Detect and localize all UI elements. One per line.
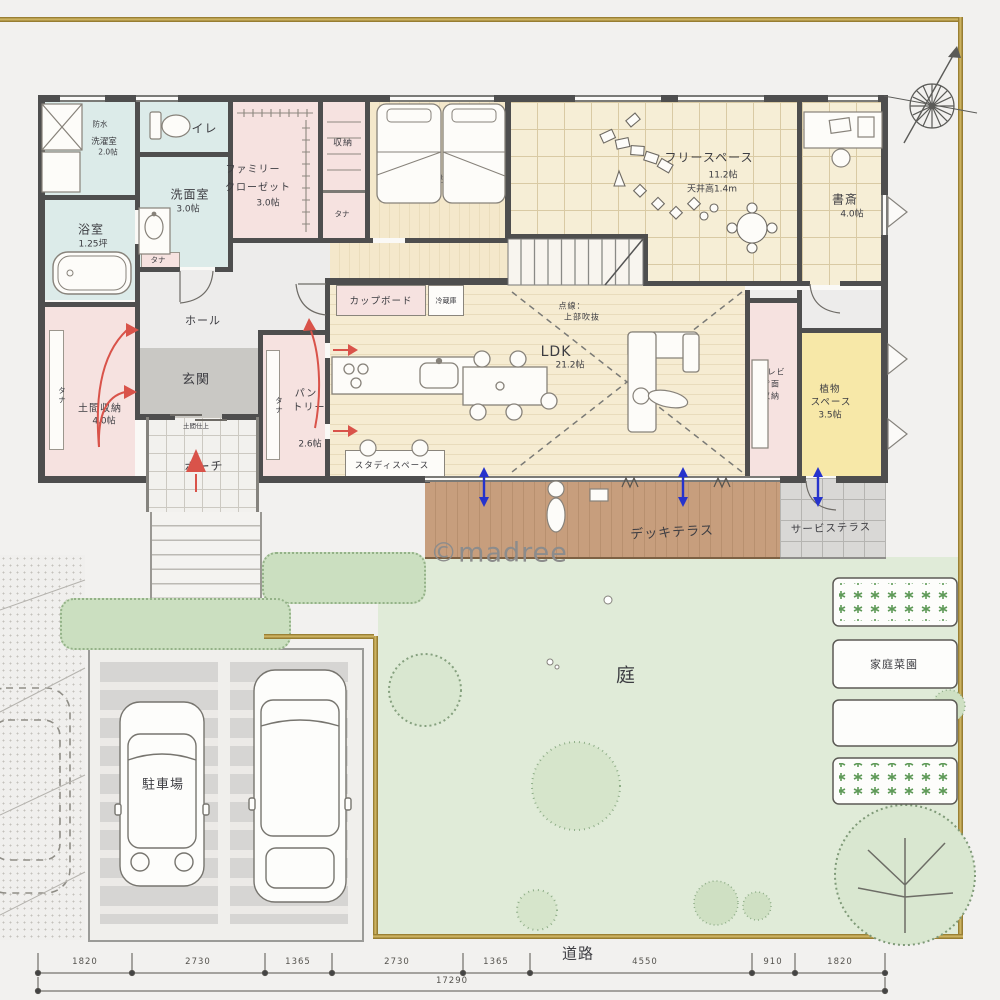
garden-area xyxy=(378,557,958,934)
room-hall-upper xyxy=(233,243,330,330)
room-free-space xyxy=(510,102,797,285)
porch-side-wall xyxy=(146,417,149,512)
wall-segment xyxy=(38,95,45,483)
label-hall: ホール xyxy=(185,312,221,328)
wall-segment xyxy=(365,95,370,242)
wall-segment xyxy=(836,476,888,483)
label-void-note-2: 上部吹抜 xyxy=(564,312,600,323)
wall-segment xyxy=(643,234,648,285)
label-entrance: 玄関 xyxy=(182,369,210,388)
wall-segment xyxy=(228,238,373,243)
wall-segment xyxy=(38,302,140,307)
label-laundry-size: 2.0帖 xyxy=(98,147,117,158)
label-family-closet-1: ファミリー xyxy=(226,161,281,176)
label-free-space-note: 天井高1.4m xyxy=(687,182,737,195)
label-washer: 洗濯機 xyxy=(50,119,73,130)
label-pantry-2: トリー xyxy=(293,399,326,414)
hedge-lower xyxy=(60,598,291,650)
dim-label: 2730 xyxy=(185,957,211,967)
label-garden: 庭 xyxy=(616,661,636,688)
label-under-storage: 下部収納 xyxy=(49,171,79,182)
room-bathroom xyxy=(45,200,135,300)
wall-segment xyxy=(745,298,802,303)
dim-label: 4550 xyxy=(632,957,658,967)
label-tv-2: 背面 xyxy=(762,379,780,390)
wall-segment xyxy=(780,476,806,483)
dim-label: 2730 xyxy=(384,957,410,967)
label-veg-garden: 家庭菜園 xyxy=(870,656,918,672)
label-void-note-1: 点線： xyxy=(559,301,586,312)
label-shelf: タナ xyxy=(151,255,166,266)
label-bedroom: 寝室 xyxy=(412,154,440,173)
window xyxy=(575,95,661,102)
label-closet: 収納 xyxy=(333,136,353,149)
window xyxy=(390,95,494,102)
label-bath-size: 1.25坪 xyxy=(78,237,107,250)
dim-label: 1820 xyxy=(72,957,98,967)
label-tv-3: 収納 xyxy=(762,391,780,402)
wall-segment xyxy=(797,102,802,285)
label-family-closet-size: 3.0帖 xyxy=(256,196,279,209)
label-work-counter: 作業台 xyxy=(50,158,73,169)
closet-divider xyxy=(323,190,365,193)
wall-segment xyxy=(38,476,148,483)
kitchen-pass-gap xyxy=(325,424,330,439)
wall-segment xyxy=(840,281,888,286)
floor-plan-canvas: 洗濯機 防水 洗濯室 2.0帖 作業台 下部収納 トイレ 洗面室 3.0帖 浴室… xyxy=(0,0,1000,1000)
dim-label: 1365 xyxy=(285,957,311,967)
dim-label: 1820 xyxy=(827,957,853,967)
label-shelf: タナ xyxy=(750,409,761,428)
window xyxy=(136,95,178,102)
label-free-space: フリースペース xyxy=(665,149,754,166)
label-bath: 浴室 xyxy=(78,221,104,238)
label-pantry-1: パン xyxy=(295,385,318,400)
garden-fence-bottom xyxy=(373,934,963,939)
label-shelf: タナ xyxy=(274,397,285,416)
label-laundry: 洗濯室 xyxy=(91,135,117,147)
dim-label: 1365 xyxy=(483,957,509,967)
dim-total-label: 17290 xyxy=(436,976,468,986)
wall-segment xyxy=(505,95,511,240)
wall-segment xyxy=(135,95,140,420)
label-washroom-size: 3.0帖 xyxy=(176,202,199,215)
dimension-lines xyxy=(35,953,887,994)
window xyxy=(881,195,888,235)
label-road: 道路 xyxy=(562,943,594,964)
label-study-size: 4.0帖 xyxy=(840,207,863,220)
porch-side-wall xyxy=(256,417,259,512)
label-study: 書斎 xyxy=(832,191,858,208)
hedge-upper xyxy=(262,552,426,604)
label-pantry-size: 2.6帖 xyxy=(298,437,321,450)
parking-bay-left xyxy=(100,662,218,924)
label-service-terrace: サービステラス xyxy=(791,519,872,537)
wall-segment xyxy=(881,95,888,483)
wall-segment xyxy=(797,290,802,476)
label-entrance-note: 土間仕上 xyxy=(183,420,209,430)
garden-fence-top-left xyxy=(264,634,374,639)
wall-segment xyxy=(222,414,258,420)
window xyxy=(828,95,878,102)
window xyxy=(60,95,105,102)
room-tv-storage xyxy=(750,303,797,476)
wall-segment xyxy=(135,414,175,420)
label-doma: 土間収納 xyxy=(78,400,122,415)
wall-segment xyxy=(508,234,648,239)
label-bedroom-size: 6.6帖 xyxy=(421,173,444,186)
label-plant-size: 3.5帖 xyxy=(818,408,841,421)
kitchen-pass-gap xyxy=(325,343,330,358)
wall-segment xyxy=(325,285,330,476)
label-shelf: タナ xyxy=(57,387,68,406)
parking-bay-right xyxy=(230,662,348,924)
wall-segment xyxy=(405,238,510,243)
label-toilet: トイレ xyxy=(178,120,217,137)
dim-label: 910 xyxy=(763,957,782,967)
label-waterproof: 防水 xyxy=(93,119,108,130)
wall-segment xyxy=(745,290,750,476)
label-cupboard: カップボード xyxy=(349,293,412,307)
gold-frame-top xyxy=(0,17,963,22)
wall-segment xyxy=(318,95,323,242)
label-washroom: 洗面室 xyxy=(170,186,209,203)
wall-segment xyxy=(140,267,180,272)
label-ldk-size: 21.2帖 xyxy=(555,358,584,371)
wall-segment xyxy=(140,152,228,157)
corridor-floor xyxy=(330,243,508,280)
wall-segment xyxy=(643,281,810,286)
label-free-space-size: 11.2帖 xyxy=(708,168,737,181)
label-parking: 駐車場 xyxy=(142,774,184,793)
garden-fence-left xyxy=(373,636,378,939)
casement-windows xyxy=(888,197,907,449)
compass-rose-icon xyxy=(884,46,977,143)
wall-segment xyxy=(45,195,135,200)
label-shelf: タナ xyxy=(335,209,350,220)
label-study-space: スタディスペース xyxy=(355,459,429,471)
wall-segment xyxy=(797,328,888,333)
deck-window-wall xyxy=(425,476,780,482)
wall-segment xyxy=(258,476,430,483)
label-plant-2: スペース xyxy=(811,394,852,408)
window xyxy=(678,95,764,102)
label-tv-1: テレビ xyxy=(759,367,786,378)
wall-segment xyxy=(258,330,328,335)
label-plant-1: 植物 xyxy=(819,381,840,395)
label-fridge: 冷蔵庫 xyxy=(436,296,457,306)
label-doma-size: 4.0帖 xyxy=(92,414,115,427)
gold-frame-right xyxy=(958,17,963,939)
label-family-closet-2: クローゼット xyxy=(225,179,291,194)
bath-door-gap xyxy=(135,210,140,244)
label-porch: ポーチ xyxy=(184,457,224,475)
watermark: ©madree xyxy=(430,538,568,569)
approach-steps xyxy=(150,512,262,598)
wall-segment xyxy=(325,278,510,285)
